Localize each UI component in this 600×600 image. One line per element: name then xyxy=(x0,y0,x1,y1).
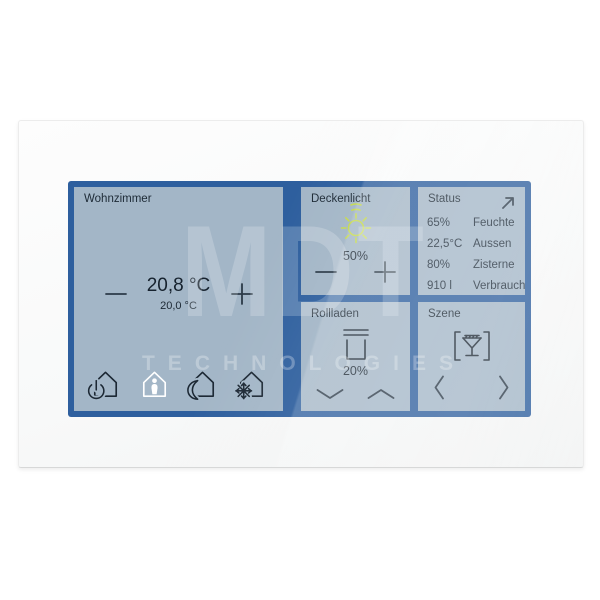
screenshot-root: Wohnzimmer 20,8 °C 20,0 °C xyxy=(0,0,600,600)
shutter-title: Rollladen xyxy=(311,308,359,320)
status-row: 22,5°C Aussen xyxy=(427,234,523,255)
shutter-level: 20% xyxy=(343,364,368,378)
tile-room-climate: Wohnzimmer 20,8 °C 20,0 °C xyxy=(74,187,283,411)
sun-brightness-icon xyxy=(334,200,378,246)
power-house-icon xyxy=(87,366,124,402)
light-dim-controls xyxy=(314,260,397,284)
scene-controls xyxy=(432,374,511,401)
glass-panel: Wohnzimmer 20,8 °C 20,0 °C xyxy=(18,120,584,468)
room-title: Wohnzimmer xyxy=(84,193,152,205)
tile-status: Status 65% Feuchte 22,5°C Aussen xyxy=(418,187,525,295)
mode-night-button[interactable] xyxy=(184,366,221,402)
light-dim-down-button[interactable] xyxy=(314,260,338,284)
status-value: 65% xyxy=(427,213,464,234)
temperature-increase-button[interactable] xyxy=(229,281,255,307)
scene-title: Szene xyxy=(428,308,461,320)
status-value: 80% xyxy=(427,255,464,276)
temperature-decrease-button[interactable] xyxy=(103,281,129,307)
expand-arrow-icon xyxy=(500,195,516,211)
status-value: 22,5°C xyxy=(427,234,464,255)
light-dim-up-button[interactable] xyxy=(373,260,397,284)
mode-presence-button[interactable] xyxy=(136,366,173,402)
scene-body xyxy=(418,328,525,366)
hvac-mode-row xyxy=(87,366,270,402)
status-value: 910 l xyxy=(427,276,464,297)
scene-next-button[interactable] xyxy=(497,374,511,401)
frost-house-icon xyxy=(233,366,270,402)
status-expand-button[interactable] xyxy=(500,195,516,211)
mode-frost-button[interactable] xyxy=(233,366,270,402)
mode-standby-button[interactable] xyxy=(87,366,124,402)
status-row: 65% Feuchte xyxy=(427,213,523,234)
chevron-up-icon xyxy=(366,387,396,401)
scene-previous-button[interactable] xyxy=(432,374,446,401)
chevron-right-icon xyxy=(497,374,511,401)
status-label: Aussen xyxy=(473,234,523,255)
status-label: Verbrauch xyxy=(473,276,525,297)
tile-scene: Szene xyxy=(418,302,525,411)
touch-display: Wohnzimmer 20,8 °C 20,0 °C xyxy=(68,181,531,417)
temperature-control: 20,8 °C 20,0 °C xyxy=(74,275,283,312)
shutter-down-button[interactable] xyxy=(315,387,345,401)
status-label: Zisterne xyxy=(473,255,523,276)
plus-icon xyxy=(373,260,397,284)
shutter-body: 20% xyxy=(301,328,410,378)
minus-icon xyxy=(103,281,129,307)
status-label: Feuchte xyxy=(473,213,523,234)
ceiling-light-body: 50% xyxy=(301,200,410,263)
tile-ceiling-light: Deckenlicht 50% xyxy=(301,187,410,295)
shutter-up-button[interactable] xyxy=(366,387,396,401)
setpoint-temperature: 20,0 °C xyxy=(142,300,216,312)
roller-shutter-icon xyxy=(340,328,372,361)
minus-icon xyxy=(314,260,338,284)
status-row: 910 l Verbrauch xyxy=(427,276,523,297)
scene-cocktail-icon xyxy=(450,328,494,366)
status-title: Status xyxy=(428,193,461,205)
status-row: 80% Zisterne xyxy=(427,255,523,276)
chevron-left-icon xyxy=(432,374,446,401)
current-temperature: 20,8 °C xyxy=(142,275,216,297)
presence-house-icon xyxy=(136,366,173,402)
temperature-readout: 20,8 °C 20,0 °C xyxy=(142,275,216,312)
plus-icon xyxy=(229,281,255,307)
shutter-controls xyxy=(315,387,396,401)
status-list: 65% Feuchte 22,5°C Aussen 80% Zisterne 9… xyxy=(427,213,523,297)
chevron-down-icon xyxy=(315,387,345,401)
tile-shutter: Rollladen 20% xyxy=(301,302,410,411)
night-house-icon xyxy=(184,366,221,402)
